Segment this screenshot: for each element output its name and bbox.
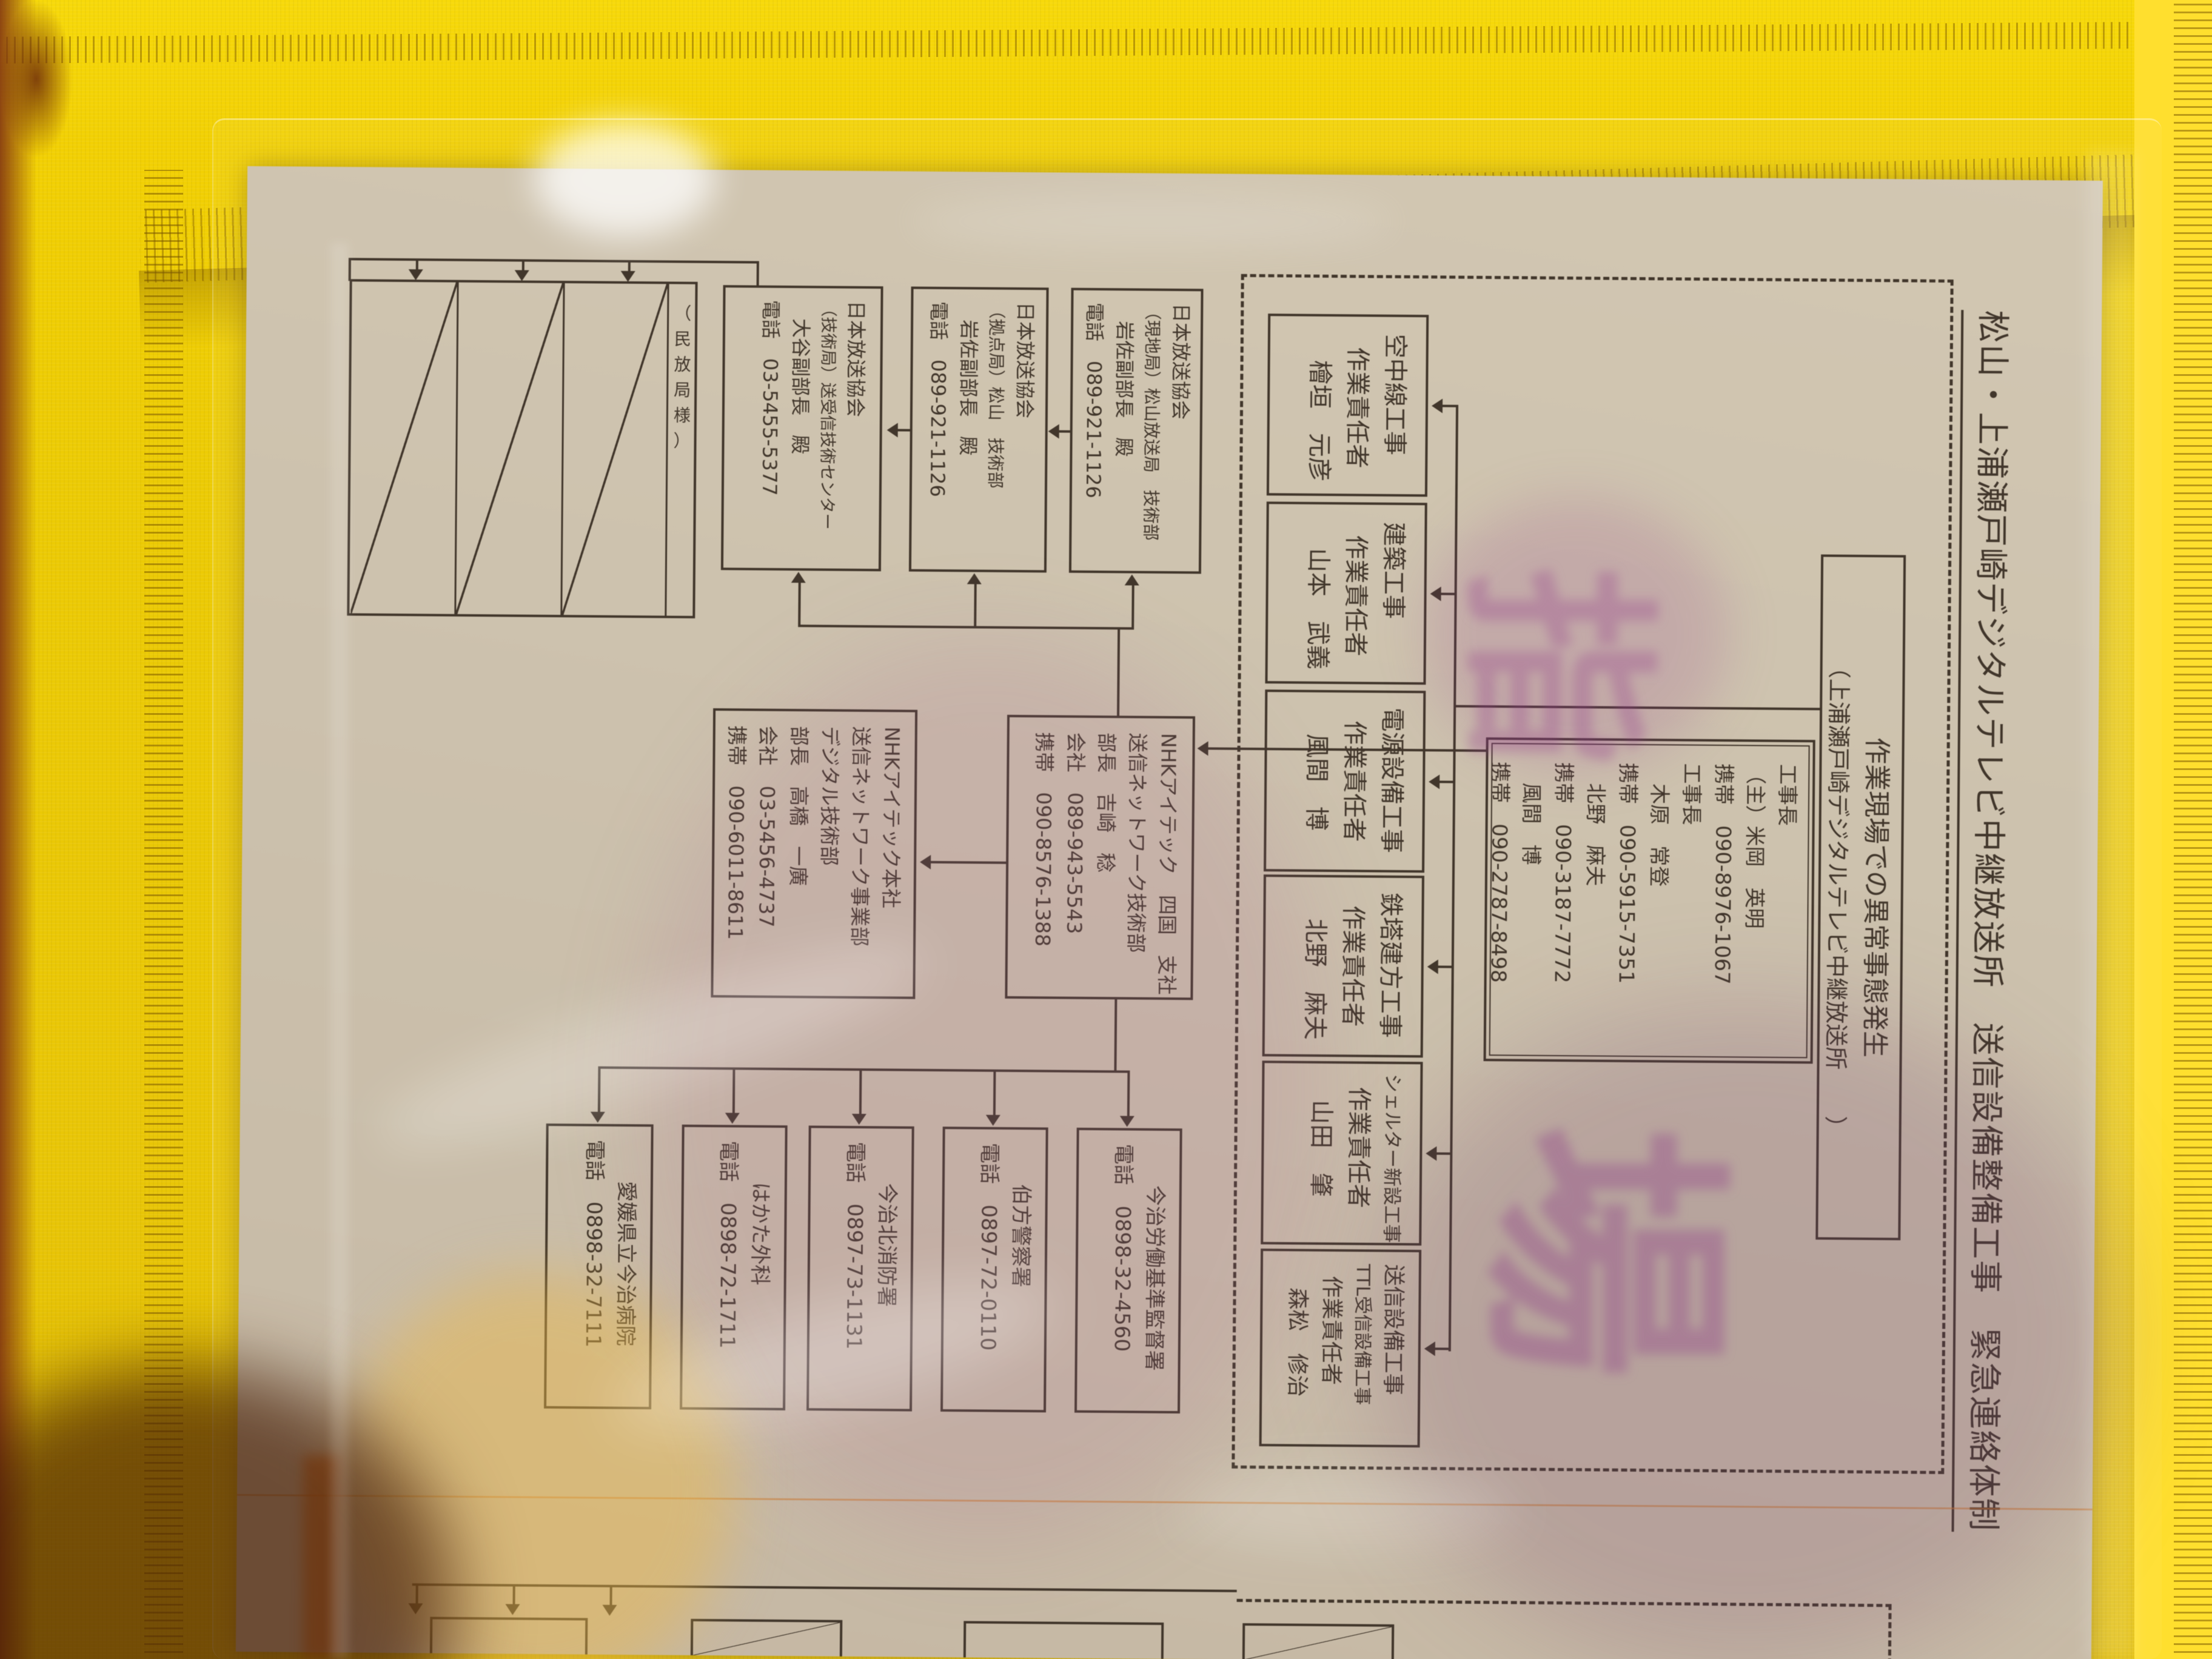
work-person: 山本 武義: [1298, 521, 1337, 682]
work-role: 作業責任者: [1336, 521, 1375, 682]
org-person: 岩佐副部長 殿: [1107, 303, 1139, 571]
work-box-tower: 鉄塔建方工事 作業責任者 北野 麻夫: [1262, 874, 1424, 1057]
org-person: 大谷副部長 殿: [783, 300, 816, 568]
leader-line: 北野 麻夫: [1577, 762, 1612, 1059]
tarp-right-stitch-band: [2174, 0, 2212, 1659]
agency-name: 愛媛県立今治病院: [608, 1140, 642, 1407]
minpo-blank-row: [560, 283, 667, 615]
org-name: 日本放送協会: [839, 301, 871, 569]
org-dept: 送信ネットワーク技術部: [1120, 732, 1153, 997]
leader-line: 木原 常登: [1641, 763, 1675, 1060]
work-type: 建築工事: [1373, 522, 1412, 682]
connector-stub: [859, 1068, 862, 1115]
work-role: 作業責任者: [1339, 1073, 1378, 1242]
connector-stub: [1127, 1070, 1130, 1117]
work-box-power: 電源設備工事 作業責任者 風間 博: [1264, 689, 1426, 873]
section2-trunk: [412, 1583, 1237, 1592]
connector-drop: [1437, 965, 1454, 968]
leader-line: 携帯 090-5915-7351: [1609, 763, 1643, 1060]
paper-fold-line: [237, 1494, 2093, 1510]
work-type2: TTL受信設備工事: [1347, 1264, 1376, 1444]
agency-name: 伯方警察署: [1003, 1143, 1037, 1410]
org-name: 日本放送協会: [1008, 302, 1040, 570]
connector-shikoku-to-hq: [928, 861, 1006, 864]
incident-line2: （上浦瀬戸崎デジタルテレビ中継放送所 ）: [1816, 557, 1857, 1237]
work-person: 風間 博: [1297, 707, 1336, 870]
org-name: NHKアイテック 四国 支社: [1151, 733, 1184, 997]
org-tel: 電話 03-5455-5377: [753, 300, 785, 568]
arrow-right-icon: [408, 1603, 423, 1614]
work-box-transmitter: 送信設備工事 TTL受信設備工事 作業責任者 森松 修治: [1259, 1248, 1422, 1447]
leader-line: （主）米岡 英明: [1737, 763, 1771, 1061]
leader-line: 携帯 090-2787-8498: [1481, 762, 1516, 1059]
nhk-itec-hq-box: NHKアイテック本社 送信ネットワーク事業部 デジタル技術部 部長 高橋 一廣 …: [711, 708, 917, 999]
leader-line: 携帯 090-3187-7772: [1545, 762, 1580, 1059]
org-tel: 電話 089-921-1126: [1078, 303, 1110, 571]
arrow-right-icon: [986, 1115, 1000, 1126]
connector-stub: [732, 1067, 736, 1114]
connector-shikoku-left-stub: [1117, 627, 1120, 716]
section2-partial-box: [430, 1617, 588, 1654]
arrow-left-icon: [1125, 574, 1139, 585]
connector-drop: [1441, 404, 1458, 407]
agency-box-labor-office: 今治労働基準監督署 電話 0898-32-4560: [1074, 1128, 1182, 1413]
minpo-blank-row: [454, 283, 563, 615]
connector-minpo-trunk: [349, 258, 759, 263]
work-person: 檜垣 元彦: [1300, 333, 1339, 494]
connector-drop: [1434, 1347, 1451, 1350]
minpo-group-box: （民放局様）: [347, 279, 697, 618]
section2-dashed-frame-edge: [1237, 1599, 1892, 1607]
connector-stub: [974, 583, 977, 628]
leader-line: 携帯 090-8976-1067: [1705, 763, 1740, 1061]
work-type: 鉄塔建方工事: [1371, 893, 1410, 1055]
arrow-left-icon: [791, 572, 806, 583]
org-mobile: 携帯 090-8576-1388: [1027, 732, 1061, 996]
arrow-right-icon: [591, 1111, 605, 1122]
connector-nhk-trunk: [798, 625, 1134, 629]
connector-minpo-stub: [757, 261, 759, 286]
agency-tel: 電話 0898-72-1711: [711, 1141, 745, 1407]
nhk-box-matsuyama-station: 日本放送協会 （現地局）松山放送局 技術部 岩佐副部長 殿 電話 089-921…: [1069, 288, 1204, 574]
agency-tel: 電話 0898-32-7111: [577, 1139, 611, 1406]
connector-drop: [1435, 1152, 1452, 1155]
org-name: 日本放送協会: [1164, 303, 1196, 571]
section2-dashed-frame-top: [1888, 1604, 1892, 1659]
arrow-left-icon: [967, 573, 982, 584]
arrow-down-icon: [1424, 1341, 1435, 1356]
org-person: 岩佐副部長 殿: [951, 301, 984, 569]
org-mobile: 携帯 090-6011-8611: [720, 725, 753, 995]
org-tel: 会社 089-943-5543: [1058, 732, 1091, 997]
agency-box-hakata-clinic: はかた外科 電話 0898-72-1711: [680, 1125, 788, 1410]
work-type: 空中線工事: [1375, 334, 1414, 494]
agency-box-imabari-hospital: 愛媛県立今治病院 電話 0898-32-7111: [544, 1124, 654, 1409]
connector-agency-trunk: [598, 1067, 1130, 1073]
org-person: 部長 高橋 一廣: [782, 726, 815, 996]
agency-tel: 電話 0897-73-1131: [837, 1142, 871, 1409]
connector-stub: [1131, 584, 1134, 629]
arrow-right-icon: [621, 271, 635, 282]
work-person: 北野 麻夫: [1296, 892, 1335, 1054]
minpo-blank-row: [350, 281, 457, 614]
connector-minpo-corner: [349, 258, 351, 281]
work-role: 作業責任者: [1313, 1264, 1348, 1444]
section2-partial-box: [1242, 1623, 1394, 1659]
work-box-building: 建築工事 作業責任者 山本 武義: [1265, 501, 1427, 685]
work-type: 電源設備工事: [1372, 708, 1411, 870]
nhk-itec-shikoku-box: NHKアイテック 四国 支社 送信ネットワーク技術部 部長 吉崎 稔 会社 08…: [1005, 715, 1195, 1000]
agency-name: 今治労働基準監督署: [1137, 1144, 1171, 1411]
work-role: 作業責任者: [1335, 707, 1373, 870]
connector-drop: [1438, 780, 1455, 783]
agency-name: はかた外科: [742, 1141, 776, 1407]
section2-partial-box: [964, 1621, 1164, 1659]
work-type: シェルター新設工事: [1376, 1074, 1407, 1243]
arrow-right-icon: [409, 269, 423, 280]
page-title: 松山・上浦瀬戸崎デジタルテレビ中継放送所 送信設備整備工事 緊急連絡体制: [1952, 310, 2019, 1532]
nhk-box-engineering-center: 日本放送協会 （技術局）送受信技術センター 大谷副部長 殿 電話 03-5455…: [721, 285, 883, 571]
tarp-left-dark-edge: [0, 0, 36, 1659]
work-person: 山田 肇: [1301, 1073, 1340, 1242]
tarp-left-stitch-band: [144, 170, 183, 1659]
org-name: NHKアイテック本社: [874, 726, 908, 996]
connector-shikoku-right-stub: [1114, 999, 1117, 1070]
arrow-down-icon: [920, 855, 931, 870]
arrow-right-icon: [725, 1113, 740, 1124]
tarp-top-left-dark-corner: [0, 0, 73, 158]
org-dept: 送信ネットワーク事業部: [843, 726, 877, 996]
arrow-right-icon: [602, 1605, 617, 1616]
org-person: 部長 吉崎 稔: [1089, 732, 1122, 997]
minpo-label: （民放局様）: [665, 284, 695, 615]
agency-tel: 電話 0897-72-0110: [971, 1142, 1005, 1409]
arrow-right-icon: [505, 1604, 520, 1615]
work-role: 作業責任者: [1333, 892, 1372, 1054]
arrow-down-icon: [1198, 741, 1208, 756]
work-box-shelter: シェルター新設工事 作業責任者 山田 肇: [1261, 1061, 1423, 1245]
work-person: 森松 修治: [1279, 1263, 1315, 1444]
org-dept: （現地局）松山放送局 技術部: [1138, 303, 1166, 571]
connector-drop: [1440, 592, 1457, 595]
arrow-right-icon: [515, 270, 529, 281]
connector-stub: [798, 581, 801, 627]
leader-box: 工事長 （主）米岡 英明 携帯 090-8976-1067 工事長 木原 常登 …: [1484, 737, 1815, 1064]
agency-tel: 電話 0898-32-4560: [1105, 1144, 1139, 1410]
section2-partial-box: [691, 1619, 842, 1657]
arrow-down-icon: [1427, 959, 1438, 974]
arrow-down-icon: [1048, 424, 1059, 438]
nhk-box-matsuyama-hub: 日本放送協会 （拠点局）松山 技術部 岩佐副部長 殿 電話 089-921-11…: [909, 287, 1049, 573]
work-role: 作業責任者: [1338, 333, 1376, 494]
arrow-down-icon: [887, 423, 898, 437]
incident-line1: 作業現場での異常事態発生: [1852, 557, 1899, 1238]
org-dept: （技術局）送受信技術センター: [813, 300, 840, 568]
orange-streak: [303, 1455, 340, 1659]
org-tel: 会社 03-5456-4737: [751, 726, 784, 996]
agency-box-fire-station: 今治北消防署 電話 0897-73-1131: [806, 1125, 914, 1411]
arrow-down-icon: [1426, 1146, 1436, 1161]
leader-line: 工事長: [1769, 764, 1803, 1061]
connector-stub: [598, 1067, 601, 1113]
agency-name: 今治北消防署: [869, 1142, 903, 1409]
agency-box-police: 伯方警察署 電話 0897-72-0110: [940, 1127, 1048, 1412]
leader-line: 工事長: [1673, 763, 1708, 1060]
document-paper: 松山・上浦瀬戸崎デジタルテレビ中継放送所 送信設備整備工事 緊急連絡体制 作業現…: [236, 166, 2103, 1659]
work-box-antenna: 空中線工事 作業責任者 檜垣 元彦: [1267, 313, 1429, 497]
org-dept2: デジタル技術部: [813, 726, 846, 996]
leader-line: 風間 博: [1513, 762, 1547, 1059]
incident-header-box: 作業現場での異常事態発生 （上浦瀬戸崎デジタルテレビ中継放送所 ）: [1815, 554, 1906, 1240]
org-dept: （拠点局）松山 技術部: [982, 302, 1010, 570]
photo-of-tarp-with-document: 松山・上浦瀬戸崎デジタルテレビ中継放送所 送信設備整備工事 緊急連絡体制 作業現…: [0, 0, 2212, 1659]
work-type: 送信設備工事: [1375, 1264, 1410, 1445]
org-tel: 電話 089-921-1126: [922, 301, 954, 569]
connector-stub: [993, 1070, 996, 1116]
arrow-right-icon: [852, 1114, 866, 1125]
arrow-down-icon: [1432, 398, 1443, 413]
arrow-right-icon: [1120, 1116, 1134, 1127]
arrow-down-icon: [1429, 774, 1439, 789]
arrow-down-icon: [1430, 586, 1441, 601]
